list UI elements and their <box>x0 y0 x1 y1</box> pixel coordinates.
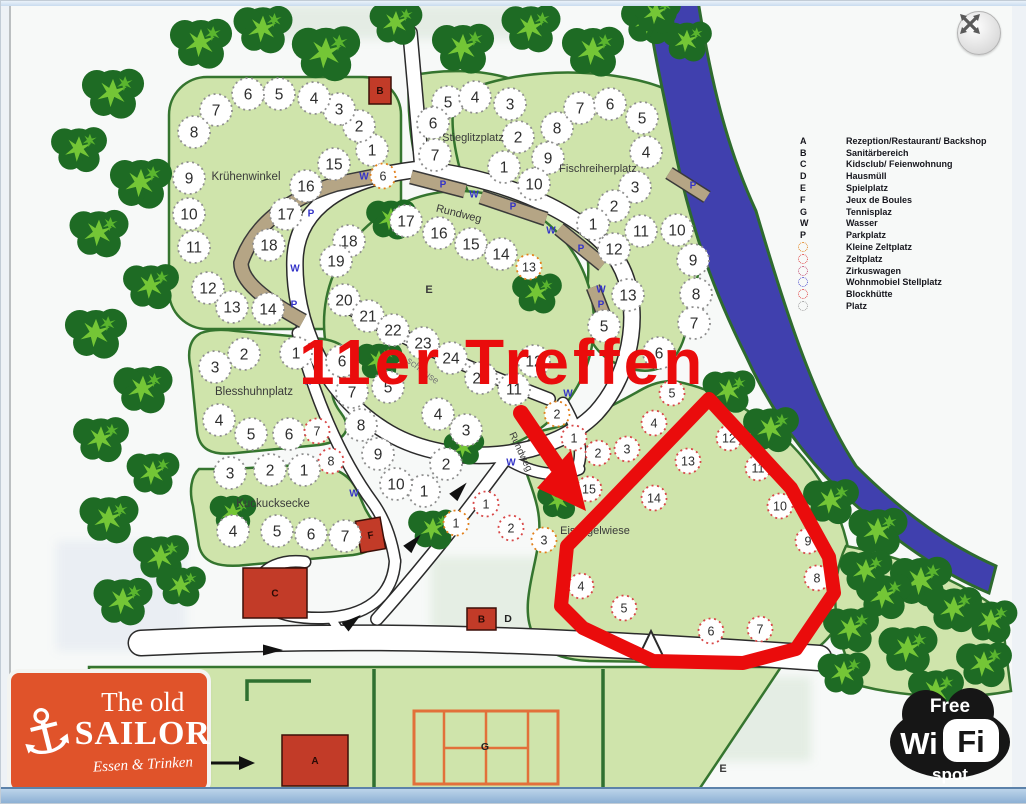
legend-key: P <box>794 230 846 240</box>
plot-number: 6 <box>380 169 387 183</box>
plot-5: 5 <box>235 418 267 450</box>
plot-number: 7 <box>314 424 321 438</box>
plot-number: 13 <box>223 299 240 316</box>
plot-1: 1 <box>444 511 469 536</box>
expand-arrows-icon <box>958 12 982 36</box>
plot-number: 12 <box>605 241 622 258</box>
building-letter: B <box>478 615 485 626</box>
plot-number: 8 <box>692 286 701 303</box>
building-c: C <box>243 568 307 618</box>
plot-number: 14 <box>492 246 510 263</box>
plot-number: 7 <box>431 147 440 164</box>
label-kuckucksecke: Kuckucksecke <box>236 498 310 510</box>
plot-number: 2 <box>554 407 561 421</box>
legend-item: Wohnmobiel Stellplatz <box>794 277 1026 289</box>
plot-number: 4 <box>215 412 224 429</box>
legend-key: D <box>794 171 846 181</box>
plot-number: 1 <box>368 142 377 159</box>
building-letter: C <box>271 589 278 600</box>
plot-number: 8 <box>328 454 335 468</box>
plot-5: 5 <box>261 515 293 547</box>
legend-item: GTennisplaz <box>794 206 1026 218</box>
building-letter: A <box>311 756 318 767</box>
plot-number: 7 <box>341 528 350 545</box>
legend-label: Wasser <box>846 218 878 228</box>
plot-number: 5 <box>273 523 282 540</box>
annotation-title: 11er Treffen <box>299 326 706 398</box>
legend-label: Spielplatz <box>846 183 888 193</box>
plot-15: 15 <box>455 228 487 260</box>
plot-12: 12 <box>598 233 630 265</box>
legend-item: Blockhütte <box>794 288 1026 300</box>
plot-1: 1 <box>577 208 609 240</box>
plot-1: 1 <box>408 475 440 507</box>
plot-number: 3 <box>211 359 220 376</box>
plot-number: 3 <box>541 533 548 547</box>
plot-2: 2 <box>586 441 611 466</box>
plot-4: 4 <box>217 515 249 547</box>
plot-16: 16 <box>423 217 455 249</box>
water-marker: W <box>506 458 516 469</box>
legend-dotted-circle-icon <box>798 301 808 311</box>
plot-number: 5 <box>638 110 647 127</box>
parking-marker: P <box>690 181 697 192</box>
tree-icon <box>73 417 129 462</box>
water-marker: W <box>290 264 300 275</box>
parking-marker: P <box>598 300 605 311</box>
plot-2: 2 <box>430 448 462 480</box>
legend-key: C <box>794 159 846 169</box>
plot-number: 1 <box>420 483 429 500</box>
wifi-fi-text: Fi <box>957 724 985 759</box>
wifi-free-text: Free <box>930 696 970 717</box>
plot-number: 7 <box>576 100 585 117</box>
legend-key: F <box>794 195 846 205</box>
plot-number: 6 <box>285 426 294 443</box>
plot-number: 11 <box>633 223 649 240</box>
plot-number: 2 <box>355 118 364 135</box>
legend-label: Kleine Zeltplatz <box>846 242 912 252</box>
plot-number: 5 <box>247 426 256 443</box>
map-viewer-window: BCFBADG 12345678910111213141516171865432… <box>0 0 1026 804</box>
plot-4: 4 <box>298 82 330 114</box>
plot-number: 4 <box>471 89 480 106</box>
legend-label: Kidsclub/ Feienwohnung <box>846 159 953 169</box>
plot-3: 3 <box>450 414 482 446</box>
label-stieglitzplatz: Stieglitzplatz <box>442 132 504 144</box>
wifi-spot-text: spot <box>932 765 968 784</box>
plot-number: 14 <box>647 491 661 505</box>
parking-marker: P <box>578 244 585 255</box>
plot-3: 3 <box>532 528 557 553</box>
plot-3: 3 <box>199 351 231 383</box>
tree-icon <box>170 19 232 69</box>
plot-11: 11 <box>178 231 210 263</box>
plot-6: 6 <box>232 78 264 110</box>
tree-icon <box>65 309 127 359</box>
plot-number: 7 <box>757 622 764 636</box>
plot-number: 11 <box>186 239 202 256</box>
plot-number: 13 <box>619 287 636 304</box>
plot-16: 16 <box>290 170 322 202</box>
legend-dotted-circle-icon <box>798 277 808 287</box>
plot-1: 1 <box>562 426 587 451</box>
legend-dotted-circle-icon <box>798 266 808 276</box>
plot-5: 5 <box>626 102 658 134</box>
legend-item: ESpielplatz <box>794 182 1026 194</box>
plot-14: 14 <box>642 486 667 511</box>
tree-icon <box>156 567 206 607</box>
plot-number: 20 <box>335 292 353 309</box>
sailor-logo-line2: SAILOR <box>75 716 211 752</box>
plot-13: 13 <box>517 255 542 280</box>
plot-number: 16 <box>297 178 314 195</box>
water-marker: W <box>359 172 369 183</box>
plot-17: 17 <box>390 205 422 237</box>
legend-item: DHausmüll <box>794 170 1026 182</box>
plot-number: 16 <box>430 225 447 242</box>
tree-icon <box>292 26 360 81</box>
plot-2: 2 <box>254 454 286 486</box>
plot-number: 17 <box>277 206 294 223</box>
legend-item: PParkplatz <box>794 229 1026 241</box>
plot-3: 3 <box>615 437 640 462</box>
plot-number: 19 <box>327 253 344 270</box>
plot-number: 5 <box>444 94 453 111</box>
legend-item: ARezeption/Restaurant/ Backshop <box>794 135 1026 147</box>
plot-5: 5 <box>612 596 637 621</box>
building-b: B <box>467 608 496 630</box>
plot-5: 5 <box>263 78 295 110</box>
plot-13: 13 <box>676 449 701 474</box>
plot-9: 9 <box>677 244 709 276</box>
building-b: B <box>369 77 391 104</box>
plot-number: 6 <box>606 96 615 113</box>
plot-number: 7 <box>212 102 221 119</box>
legend-label: Hausmüll <box>846 171 887 181</box>
plot-8: 8 <box>319 449 344 474</box>
plot-number: 5 <box>275 86 284 103</box>
legend-label: Jeux de Boules <box>846 195 912 205</box>
legend-label: Platz <box>846 301 867 311</box>
plot-number: 6 <box>708 624 715 638</box>
window-bottom-bar <box>1 787 1026 804</box>
plot-number: 1 <box>483 497 490 511</box>
plot-number: 4 <box>434 406 443 423</box>
plot-number: 3 <box>624 442 631 456</box>
plot-number: 9 <box>544 150 553 167</box>
plot-number: 4 <box>310 90 319 107</box>
tree-icon <box>110 159 172 209</box>
legend-dotted-circle-icon <box>798 254 808 264</box>
tree-icon <box>80 496 139 543</box>
plot-2: 2 <box>499 516 524 541</box>
legend-label: Parkplatz <box>846 230 886 240</box>
tree-icon <box>94 578 153 625</box>
plot-9: 9 <box>173 162 205 194</box>
plot-14: 14 <box>252 293 284 325</box>
legend-key: E <box>794 183 846 193</box>
plot-13: 13 <box>612 279 644 311</box>
plot-10: 10 <box>380 468 412 500</box>
building-label-g: G <box>481 741 489 753</box>
plot-6: 6 <box>273 418 305 450</box>
plot-number: 2 <box>508 521 515 535</box>
legend-label: Sanitärbereich <box>846 148 909 158</box>
plot-18: 18 <box>253 229 285 261</box>
plot-number: 2 <box>514 129 523 146</box>
plot-6: 6 <box>295 518 327 550</box>
plot-number: 2 <box>240 346 249 363</box>
legend-label: Wohnmobiel Stellplatz <box>846 277 942 287</box>
plot-10: 10 <box>518 168 550 200</box>
label-fischreiherplatz: Fischreiherplatz <box>559 163 637 175</box>
map-legend: ARezeption/Restaurant/ BackshopBSanitärb… <box>794 135 1026 312</box>
plot-number: 13 <box>681 454 695 468</box>
legend-key: W <box>794 218 846 228</box>
plot-number: 12 <box>199 280 216 297</box>
plot-number: 8 <box>814 571 821 585</box>
legend-item: FJeux de Boules <box>794 194 1026 206</box>
legend-item: Platz <box>794 300 1026 312</box>
plot-number: 15 <box>462 236 479 253</box>
plot-number: 4 <box>229 523 238 540</box>
plot-number: 6 <box>307 526 316 543</box>
plot-number: 15 <box>582 482 596 496</box>
plot-9: 9 <box>362 438 394 470</box>
plot-number: 9 <box>374 446 383 463</box>
plot-3: 3 <box>214 457 246 489</box>
label-e: E <box>719 763 726 775</box>
plot-number: 3 <box>335 101 344 118</box>
plot-17: 17 <box>270 198 302 230</box>
legend-item: Kleine Zeltplatz <box>794 241 1026 253</box>
legend-key: B <box>794 148 846 158</box>
plot-number: 15 <box>325 156 342 173</box>
legend-item: CKidsclub/ Feienwohnung <box>794 159 1026 171</box>
anchor-icon: ⚓ <box>10 695 79 769</box>
plot-11: 11 <box>625 215 657 247</box>
plot-8: 8 <box>345 409 377 441</box>
plot-4: 4 <box>569 574 594 599</box>
plot-number: 10 <box>525 176 543 193</box>
plot-7: 7 <box>329 520 361 552</box>
window-top-edge <box>1 1 1026 6</box>
tree-icon <box>432 24 494 74</box>
tree-icon <box>127 452 180 494</box>
water-marker: W <box>469 190 479 201</box>
legend-item: BSanitärbereich <box>794 147 1026 159</box>
plot-number: 4 <box>651 416 658 430</box>
plot-number: 13 <box>522 260 536 274</box>
building-a: A <box>282 735 348 786</box>
sailor-logo-line1: The old <box>101 689 184 716</box>
label-e: E <box>425 284 432 296</box>
water-marker: W <box>596 285 606 296</box>
plot-number: 1 <box>453 516 460 530</box>
plot-number: 2 <box>610 198 619 215</box>
plot-number: 2 <box>595 446 602 460</box>
plot-10: 10 <box>173 198 205 230</box>
legend-label: Tennisplaz <box>846 207 892 217</box>
building-letter: B <box>376 86 383 97</box>
tree-icon <box>502 5 561 52</box>
plot-8: 8 <box>178 116 210 148</box>
legend-dotted-circle-icon <box>798 289 808 299</box>
wifi-cloud: Free Wi Fi spot <box>890 688 1010 784</box>
plot-6: 6 <box>371 164 396 189</box>
plot-2: 2 <box>228 338 260 370</box>
plot-4: 4 <box>459 81 491 113</box>
plot-7: 7 <box>564 92 596 124</box>
plot-number: 4 <box>578 579 585 593</box>
plot-number: 1 <box>300 462 309 479</box>
label-krhenwinkel: Krühenwinkel <box>211 171 280 183</box>
plot-number: 8 <box>190 124 199 141</box>
expand-close-button[interactable] <box>957 11 1001 55</box>
plot-number: 8 <box>357 417 366 434</box>
plot-number: 3 <box>226 465 235 482</box>
plot-1: 1 <box>488 151 520 183</box>
plot-2: 2 <box>545 402 570 427</box>
plot-number: 3 <box>631 179 640 196</box>
building-label-d: D <box>504 613 512 625</box>
plot-14: 14 <box>485 238 517 270</box>
tree-icon <box>82 69 144 119</box>
plot-number: 1 <box>500 159 509 176</box>
plot-6: 6 <box>594 88 626 120</box>
plot-7: 7 <box>305 419 330 444</box>
plot-4: 4 <box>642 411 667 436</box>
plot-number: 14 <box>259 301 277 318</box>
plot-number: 6 <box>244 86 253 103</box>
plot-3: 3 <box>494 88 526 120</box>
plot-number: 21 <box>359 308 376 325</box>
plot-number: 3 <box>506 96 515 113</box>
plot-4: 4 <box>203 404 235 436</box>
legend-label: Zirkuswagen <box>846 266 901 276</box>
plot-7: 7 <box>748 617 773 642</box>
parking-marker: P <box>291 300 298 311</box>
label-blesshuhnplatz: Blesshuhnplatz <box>215 386 293 398</box>
plot-number: 10 <box>668 222 686 239</box>
tree-icon <box>51 127 107 172</box>
plot-8: 8 <box>680 278 712 310</box>
legend-item: WWasser <box>794 218 1026 230</box>
parking-marker: P <box>308 209 315 220</box>
road-arrow <box>449 479 471 501</box>
plot-number: 10 <box>180 206 198 223</box>
water-marker: W <box>349 489 359 500</box>
plot-number: 18 <box>260 237 277 254</box>
plot-number: 1 <box>589 216 598 233</box>
sailor-logo-line3: Essen & Trinken <box>92 754 193 776</box>
plot-1: 1 <box>474 492 499 517</box>
tree-icon <box>234 6 293 53</box>
plot-number: 2 <box>442 456 451 473</box>
plot-number: 6 <box>429 115 438 132</box>
legend-dotted-circle-icon <box>798 242 808 252</box>
plot-19: 19 <box>320 245 352 277</box>
plot-number: 4 <box>642 144 651 161</box>
plot-number: 3 <box>462 422 471 439</box>
plot-number: 17 <box>397 213 414 230</box>
plot-number: 9 <box>185 170 194 187</box>
tree-icon <box>818 652 871 694</box>
plot-number: 2 <box>266 462 275 479</box>
plot-6: 6 <box>699 619 724 644</box>
plot-number: 5 <box>621 601 628 615</box>
plot-number: 9 <box>689 252 698 269</box>
plot-1: 1 <box>288 454 320 486</box>
water-marker: W <box>546 226 556 237</box>
legend-label: Rezeption/Restaurant/ Backshop <box>846 136 987 146</box>
plot-13: 13 <box>216 291 248 323</box>
plot-number: 1 <box>571 431 578 445</box>
legend-item: Zirkuswagen <box>794 265 1026 277</box>
plot-4: 4 <box>422 398 454 430</box>
parking-marker: P <box>510 202 517 213</box>
legend-key: G <box>794 207 846 217</box>
plot-number: 10 <box>773 499 787 513</box>
legend-key: A <box>794 136 846 146</box>
legend-label: Blockhütte <box>846 289 893 299</box>
legend-label: Zeltplatz <box>846 254 883 264</box>
old-sailor-logo: ⚓ The old SAILOR Essen & Trinken <box>11 673 207 790</box>
plot-15: 15 <box>318 148 350 180</box>
plot-number: 8 <box>553 120 562 137</box>
plot-2: 2 <box>502 121 534 153</box>
plot-10: 10 <box>661 214 693 246</box>
plot-number: 10 <box>387 476 405 493</box>
parking-marker: P <box>440 180 447 191</box>
tree-icon <box>70 210 129 257</box>
tree-icon <box>562 27 624 77</box>
legend-item: Zeltplatz <box>794 253 1026 265</box>
tree-icon <box>114 366 173 413</box>
wifi-wi-text: Wi <box>900 726 938 761</box>
